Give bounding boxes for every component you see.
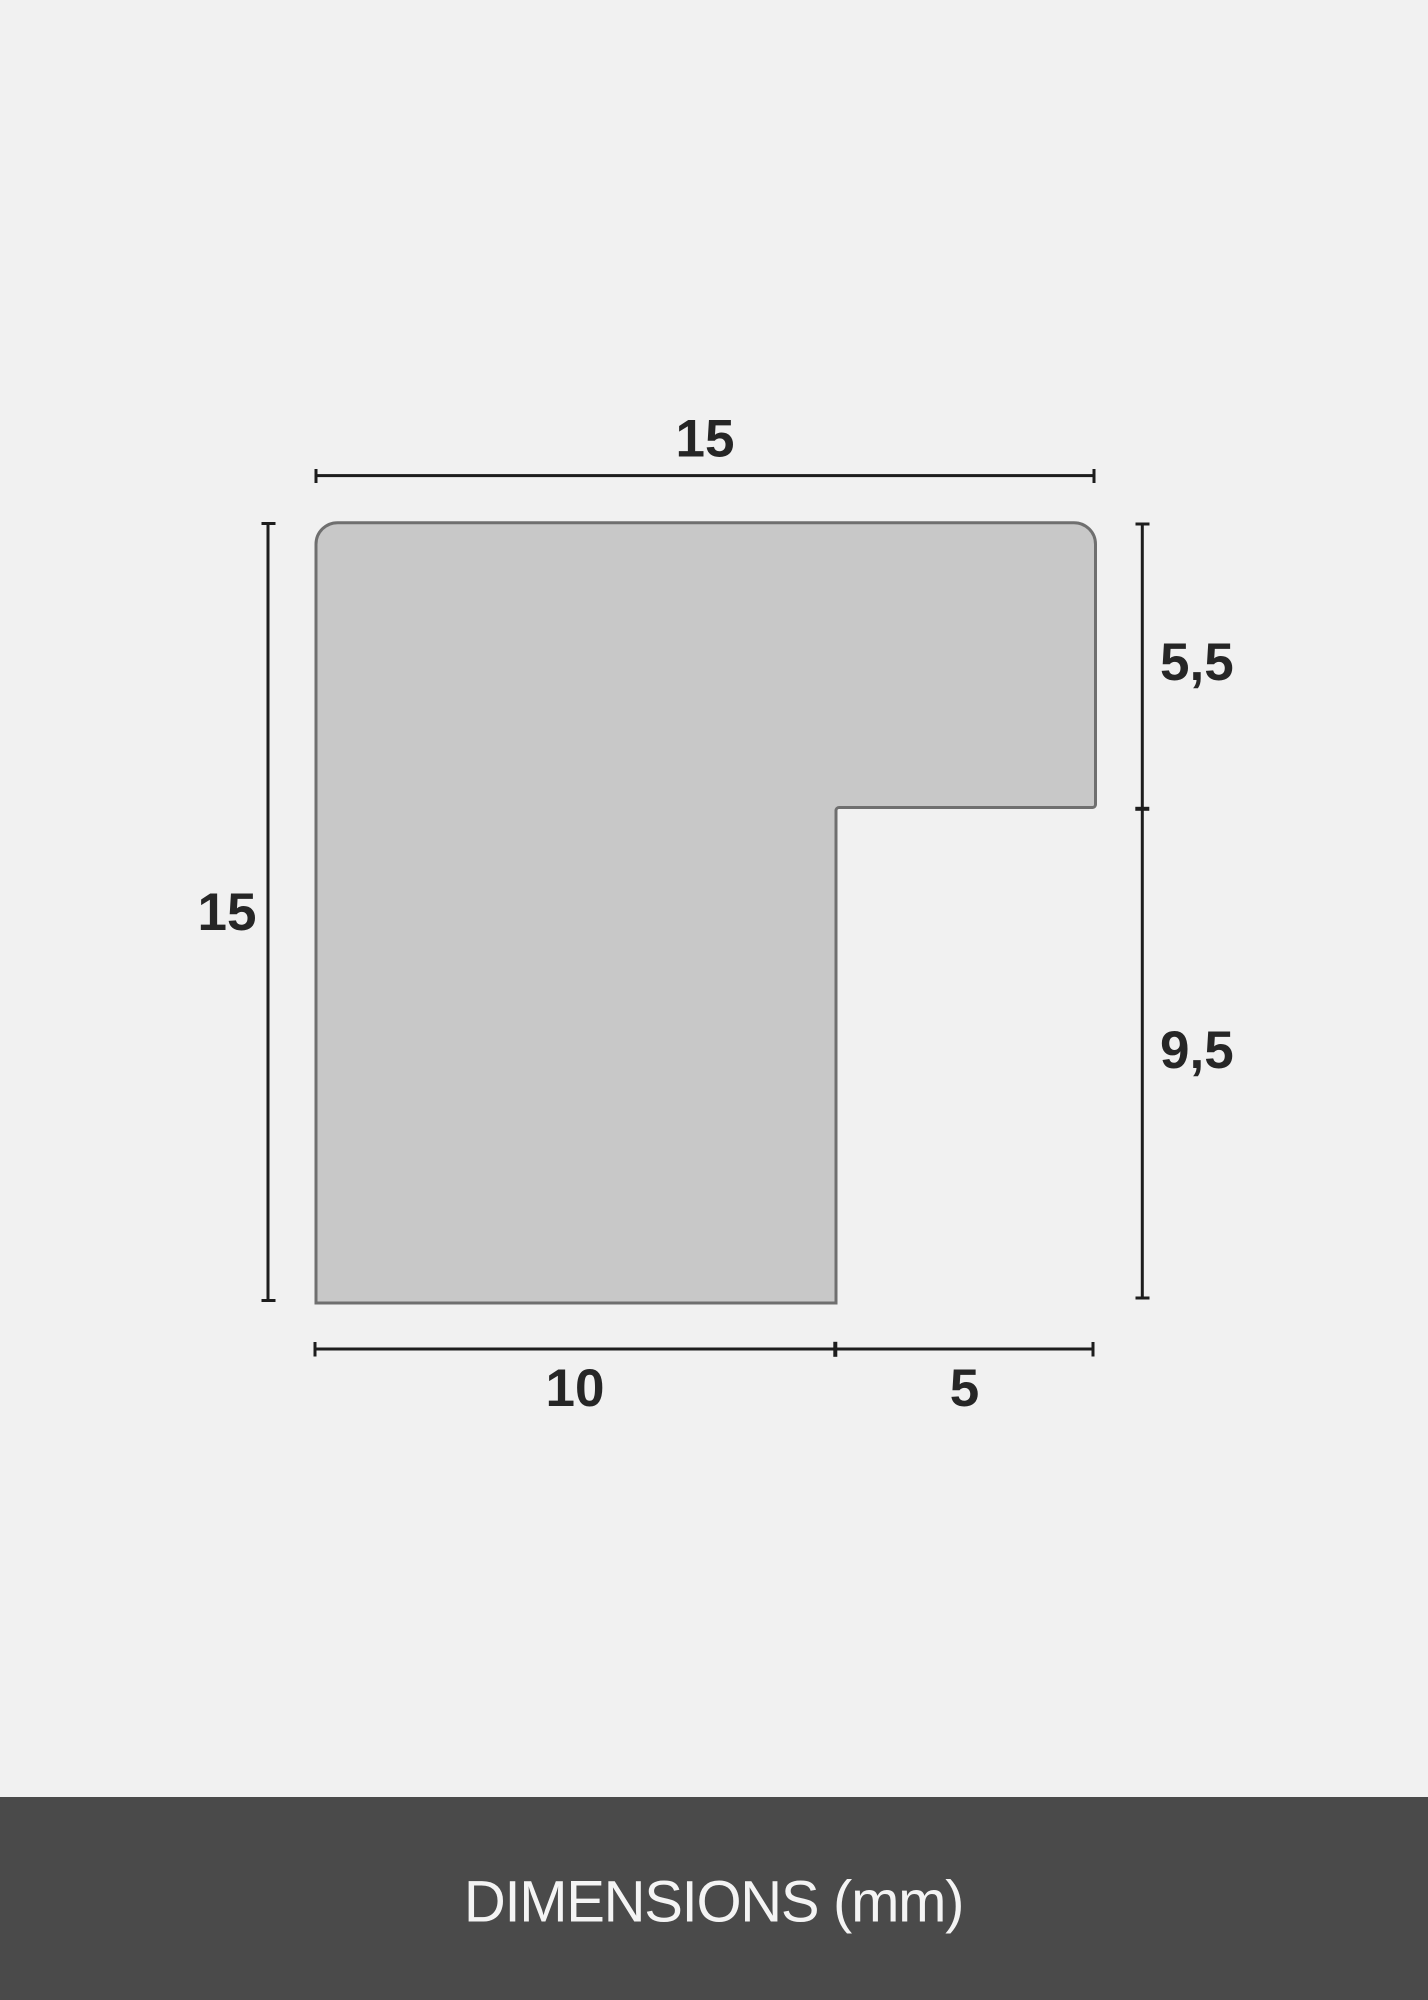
svg-text:DIMENSIONS (mm): DIMENSIONS (mm): [464, 1870, 963, 1935]
svg-text:5,5: 5,5: [1160, 633, 1234, 692]
svg-text:5: 5: [950, 1359, 979, 1418]
svg-text:15: 15: [676, 410, 735, 469]
svg-text:15: 15: [198, 883, 257, 942]
svg-text:9,5: 9,5: [1160, 1021, 1234, 1080]
svg-text:10: 10: [546, 1359, 605, 1418]
